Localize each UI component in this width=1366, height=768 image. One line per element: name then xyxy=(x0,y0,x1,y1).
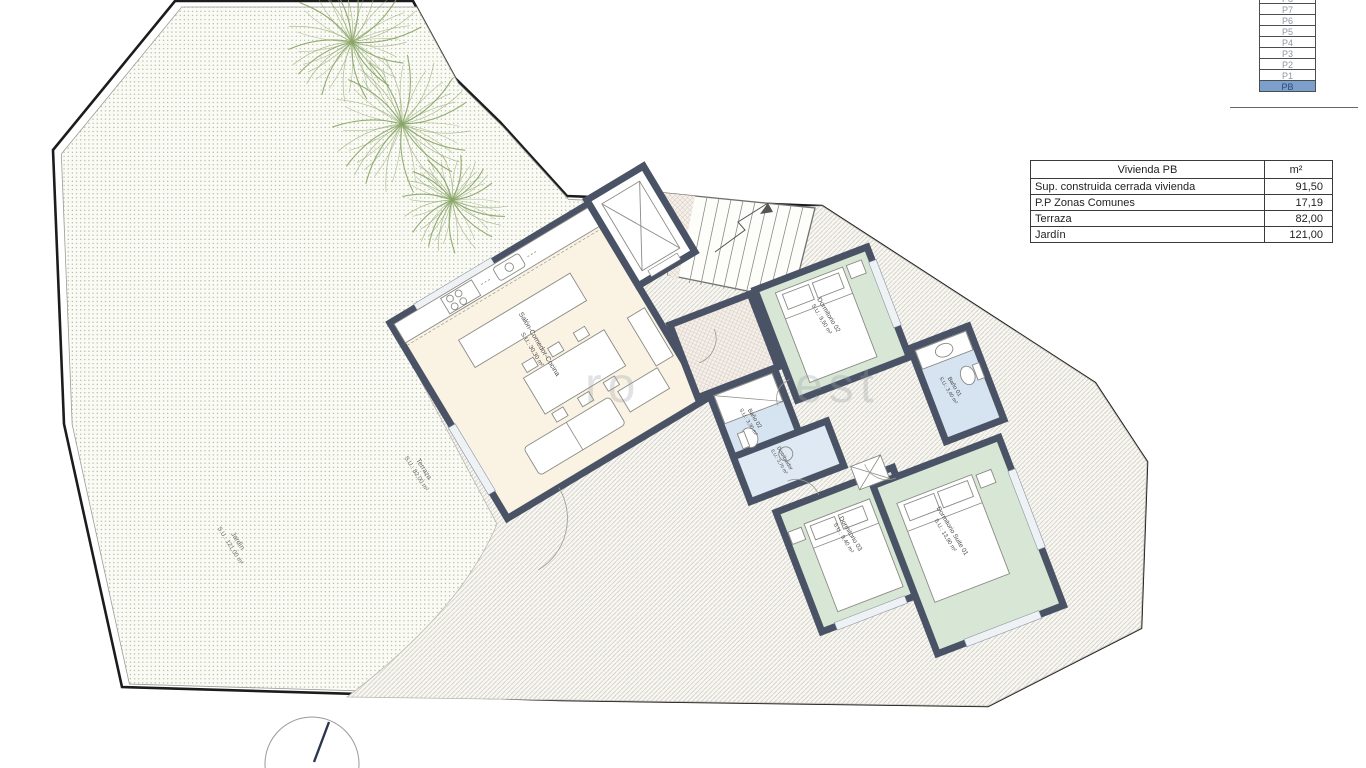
area-table-row: Jardín121,00 xyxy=(1031,227,1333,243)
area-table-row: P.P Zonas Comunes17,19 xyxy=(1031,195,1333,211)
area-row-label: Terraza xyxy=(1031,211,1265,227)
floor-level-pb[interactable]: PB xyxy=(1259,80,1316,92)
north-compass xyxy=(265,717,359,768)
area-table-header: Vivienda PB m² xyxy=(1031,161,1333,179)
area-row-label: P.P Zonas Comunes xyxy=(1031,195,1265,211)
area-row-value: 121,00 xyxy=(1265,227,1333,243)
plan-canvas: Salón-Comedor-Cocina S.U.: 30,30 m² xyxy=(0,0,1366,768)
area-row-value: 82,00 xyxy=(1265,211,1333,227)
area-table-unit: m² xyxy=(1265,161,1333,179)
area-table: Vivienda PB m² Sup. construida cerrada v… xyxy=(1030,160,1333,243)
floor-selector-baseline xyxy=(1230,107,1358,108)
area-row-value: 91,50 xyxy=(1265,179,1333,195)
area-row-value: 17,19 xyxy=(1265,195,1333,211)
floorplan-page: Salón-Comedor-Cocina S.U.: 30,30 m² xyxy=(0,0,1366,768)
area-row-label: Jardín xyxy=(1031,227,1265,243)
area-row-label: Sup. construida cerrada vivienda xyxy=(1031,179,1265,195)
watermark: ro xyxy=(585,357,641,413)
watermark: est xyxy=(795,357,880,413)
area-table-title: Vivienda PB xyxy=(1031,161,1265,179)
area-table-row: Terraza82,00 xyxy=(1031,211,1333,227)
floor-selector: P8P7P6P5P4P3P2P1PB xyxy=(1259,0,1316,92)
compass-needle xyxy=(314,722,329,762)
area-table-row: Sup. construida cerrada vivienda91,50 xyxy=(1031,179,1333,195)
